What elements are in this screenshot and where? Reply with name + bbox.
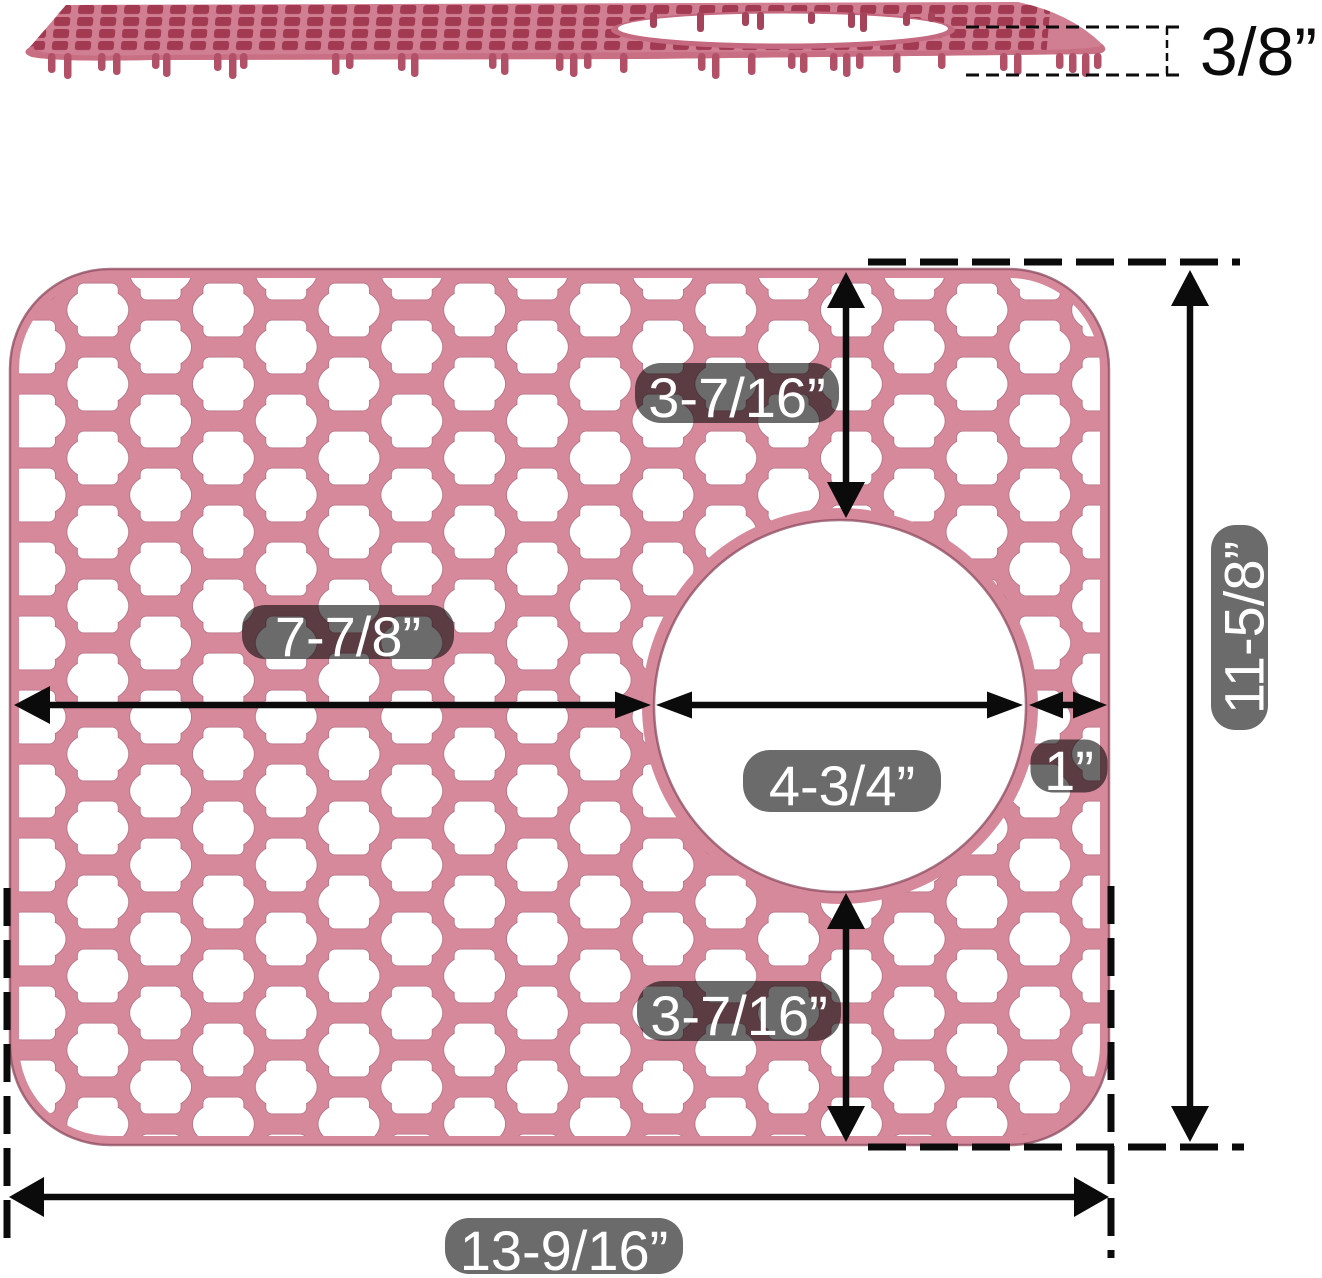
svg-text:1”: 1” — [1044, 739, 1094, 802]
svg-text:11-5/8”: 11-5/8” — [1213, 541, 1276, 714]
svg-text:7-7/8”: 7-7/8” — [275, 605, 421, 668]
svg-text:3-7/16”: 3-7/16” — [648, 366, 825, 429]
svg-text:3/8”: 3/8” — [1200, 14, 1317, 90]
svg-text:4-3/4”: 4-3/4” — [769, 754, 915, 817]
svg-text:3-7/16”: 3-7/16” — [650, 984, 827, 1047]
svg-text:13-9/16”: 13-9/16” — [460, 1219, 669, 1278]
